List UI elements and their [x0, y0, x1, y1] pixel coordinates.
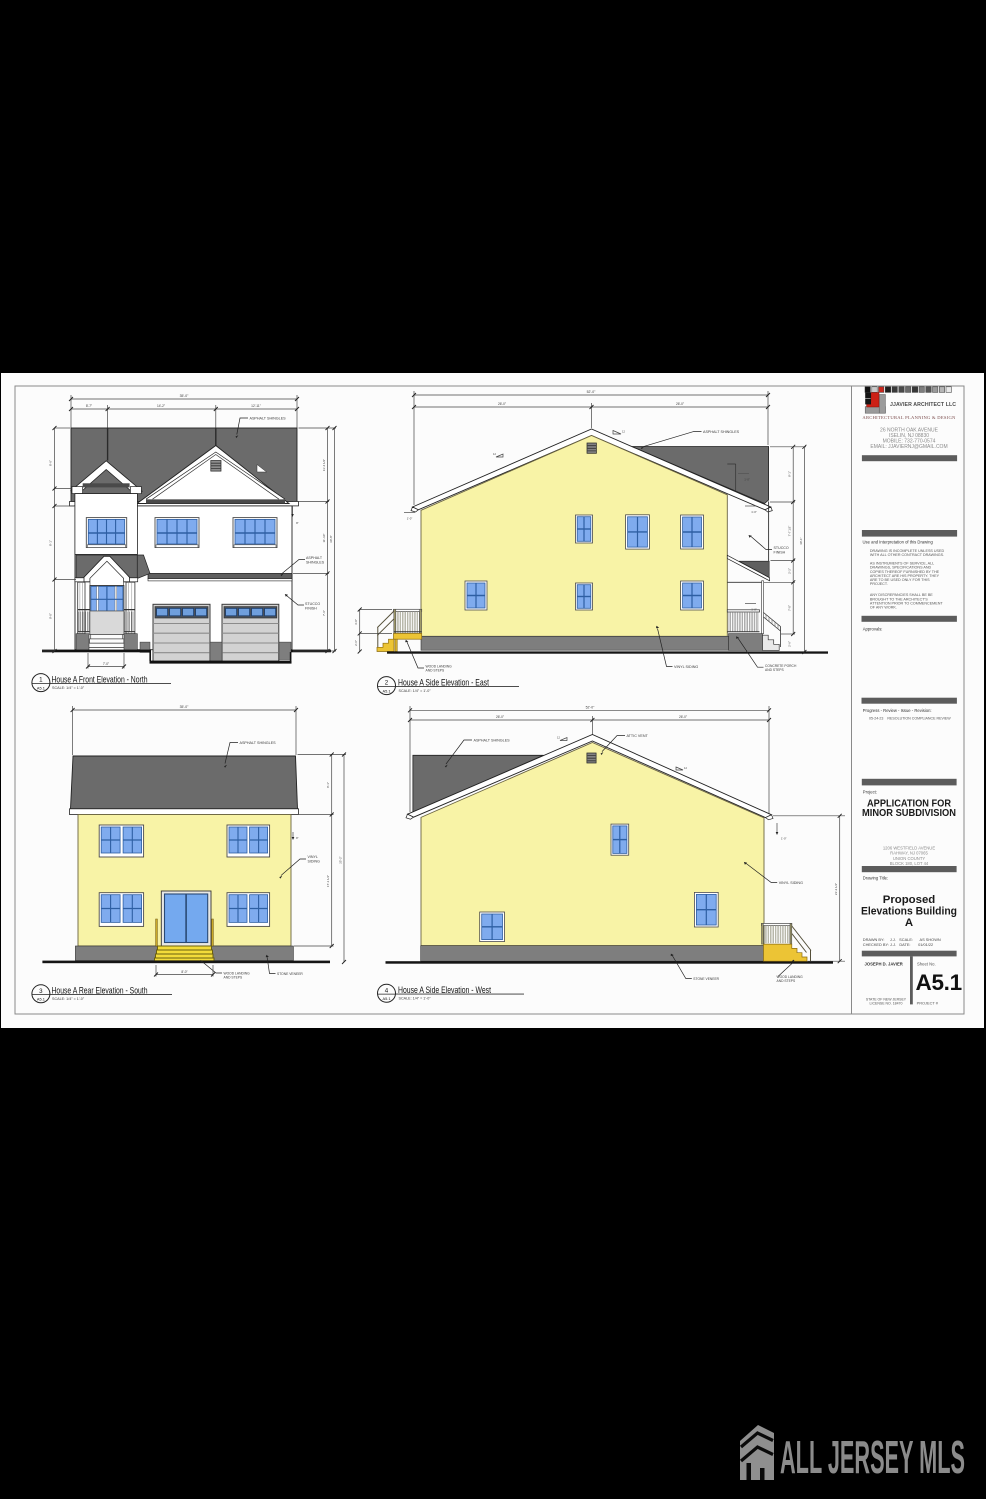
svg-text:Proposed: Proposed — [883, 894, 936, 906]
svg-text:STUCCO: STUCCO — [774, 546, 789, 550]
svg-text:ATTIC VENT: ATTIC VENT — [627, 734, 649, 738]
svg-text:A5.1: A5.1 — [37, 685, 45, 690]
svg-text:26'-0": 26'-0" — [679, 715, 687, 719]
svg-text:Project:: Project: — [863, 790, 877, 795]
svg-text:Elevations Building: Elevations Building — [861, 905, 957, 917]
svg-text:7'-0": 7'-0" — [103, 662, 109, 666]
svg-text:1'-0": 1'-0" — [744, 478, 750, 482]
svg-text:AND STEPS: AND STEPS — [777, 979, 796, 983]
svg-text:MINOR SUBDIVISION: MINOR SUBDIVISION — [862, 808, 956, 819]
svg-text:A5.1: A5.1 — [37, 997, 45, 1002]
svg-text:SHINGLES: SHINGLES — [306, 560, 325, 564]
svg-text:12'-11": 12'-11" — [251, 404, 261, 408]
svg-text:JJAVIER ARCHITECT LLC: JJAVIER ARCHITECT LLC — [890, 402, 956, 408]
svg-text:21'-2 1/2": 21'-2 1/2" — [834, 883, 838, 895]
svg-text:JOSEPH D. JAVIER: JOSEPH D. JAVIER — [865, 962, 903, 967]
svg-text:AND STEPS: AND STEPS — [426, 669, 445, 673]
svg-text:STONE VENEER: STONE VENEER — [277, 972, 303, 976]
svg-text:7'-7 1/2": 7'-7 1/2" — [788, 526, 792, 537]
svg-text:3: 3 — [39, 988, 43, 995]
svg-text:7'-6": 7'-6" — [322, 610, 326, 616]
svg-text:PROJECT.: PROJECT. — [870, 582, 888, 586]
svg-text:ARCHITECTURAL PLANNING & DESIG: ARCHITECTURAL PLANNING & DESIGN — [862, 415, 956, 420]
svg-text:AND STEPS: AND STEPS — [224, 975, 243, 979]
svg-text:1'-0": 1'-0" — [407, 517, 413, 521]
svg-text:EMAIL: JJAVIERNJ@GMAIL.COM: EMAIL: JJAVIERNJ@GMAIL.COM — [870, 444, 947, 450]
svg-text:AND STEPS: AND STEPS — [765, 668, 784, 672]
svg-text:Use and Interpretation of this: Use and Interpretation of this Drawing — [863, 540, 934, 545]
svg-text:House A Side Elevation - East: House A Side Elevation - East — [398, 677, 489, 687]
svg-text:8'-0": 8'-0" — [181, 970, 187, 974]
svg-text:House A Front Elevation - Nort: House A Front Elevation - North — [52, 674, 148, 684]
svg-text:ALL JERSEY MLS: ALL JERSEY MLS — [780, 1431, 965, 1483]
svg-text:BLOCK 180, LOT 44: BLOCK 180, LOT 44 — [890, 861, 929, 866]
svg-text:VINYL SIDING: VINYL SIDING — [779, 881, 803, 885]
svg-text:House A Rear Elevation - South: House A Rear Elevation - South — [52, 986, 148, 996]
svg-text:26'-0": 26'-0" — [496, 715, 504, 719]
svg-text:PROJECT #: PROJECT # — [917, 1001, 939, 1006]
svg-text:26'-0": 26'-0" — [498, 402, 506, 406]
svg-text:8'-1": 8'-1" — [49, 540, 53, 546]
svg-text:7'-0": 7'-0" — [788, 605, 792, 611]
svg-text:8'-1": 8'-1" — [788, 471, 792, 477]
svg-text:8'-1": 8'-1" — [326, 782, 330, 788]
svg-text:2'-2": 2'-2" — [788, 568, 792, 574]
svg-text:ASPHALT SHINGLES: ASPHALT SHINGLES — [474, 738, 511, 742]
svg-text:ASPHALT SHINGLES: ASPHALT SHINGLES — [703, 430, 740, 434]
svg-text:ASPHALT: ASPHALT — [306, 556, 323, 560]
svg-text:30'-8": 30'-8" — [329, 535, 333, 543]
svg-text:STONE VENEER: STONE VENEER — [693, 977, 719, 981]
svg-text:17'-1 1/2": 17'-1 1/2" — [326, 875, 330, 887]
svg-text:14'-2": 14'-2" — [157, 404, 165, 408]
svg-text:9": 9" — [296, 836, 299, 840]
svg-text:House A Side Elevation - West: House A Side Elevation - West — [398, 985, 491, 995]
svg-text:SCALE: 1/4" = 1'-0": SCALE: 1/4" = 1'-0" — [399, 689, 432, 693]
svg-text:52'-0": 52'-0" — [586, 706, 595, 710]
svg-text:1: 1 — [39, 677, 43, 684]
svg-text:CHECKED BY: J.J. DATE:: CHECKED BY: J.J. DATE: 01/01/22 — [863, 942, 933, 947]
svg-text:LICENSE NO. 18470: LICENSE NO. 18470 — [870, 1001, 903, 1005]
svg-text:SCALE: 1/4" = 1'-0": SCALE: 1/4" = 1'-0" — [399, 997, 432, 1001]
svg-text:26'-0": 26'-0" — [676, 402, 684, 406]
svg-text:25'-2": 25'-2" — [339, 856, 343, 863]
svg-text:2'-6": 2'-6" — [788, 641, 792, 647]
svg-text:A5.1: A5.1 — [916, 970, 962, 995]
svg-text:8'-6": 8'-6" — [49, 460, 53, 466]
svg-text:4: 4 — [385, 987, 389, 994]
svg-text:30'-1": 30'-1" — [799, 537, 803, 544]
svg-text:52'-0": 52'-0" — [587, 390, 596, 394]
svg-text:SCALE: 1/4" = 1'-0": SCALE: 1/4" = 1'-0" — [52, 686, 85, 690]
svg-text:SCALE: 1/4" = 1'-0": SCALE: 1/4" = 1'-0" — [52, 997, 85, 1001]
svg-text:8'-7": 8'-7" — [86, 404, 92, 408]
svg-text:2'-6": 2'-6" — [354, 640, 358, 646]
svg-text:Sheet No.: Sheet No. — [917, 962, 936, 967]
svg-text:11'-4 1/2": 11'-4 1/2" — [322, 459, 326, 471]
svg-text:A5.1: A5.1 — [382, 996, 390, 1001]
svg-text:05-24-23 RESOLUTION COMPLIA: 05-24-23 RESOLUTION COMPLIANCE REVIEW — [869, 717, 951, 721]
svg-text:VINYL: VINYL — [308, 855, 318, 859]
svg-text:1'-0": 1'-0" — [751, 608, 757, 612]
svg-text:WITH ALL OTHER CONTRACT DRAWIN: WITH ALL OTHER CONTRACT DRAWINGS. — [870, 553, 944, 557]
svg-text:Progress - Review - Issue - Re: Progress - Review - Issue - Revision: — [863, 708, 932, 713]
svg-text:A: A — [905, 917, 913, 929]
svg-text:9'-0": 9'-0" — [49, 613, 53, 619]
svg-text:SIDING: SIDING — [308, 859, 321, 863]
svg-text:1'-0": 1'-0" — [781, 837, 787, 841]
svg-text:A5.1: A5.1 — [382, 688, 390, 693]
svg-text:2: 2 — [385, 680, 389, 687]
svg-text:1'-0": 1'-0" — [751, 510, 757, 514]
svg-text:FINISH: FINISH — [305, 606, 317, 610]
svg-text:35'-0": 35'-0" — [180, 705, 189, 709]
svg-text:ASPHALT SHINGLES: ASPHALT SHINGLES — [250, 417, 287, 421]
svg-text:35'-0": 35'-0" — [180, 394, 189, 398]
svg-text:STUCCO: STUCCO — [305, 602, 320, 606]
svg-text:11'-10": 11'-10" — [322, 533, 326, 542]
svg-text:ASPHALT SHINGLES: ASPHALT SHINGLES — [240, 741, 277, 745]
svg-text:3'-0": 3'-0" — [354, 619, 358, 625]
svg-text:FINISH: FINISH — [774, 550, 786, 554]
svg-text:9": 9" — [296, 521, 299, 525]
svg-text:Drawing Title:: Drawing Title: — [863, 876, 888, 881]
svg-text:VINYL SIDING: VINYL SIDING — [674, 665, 698, 669]
svg-text:OF ANY WORK.: OF ANY WORK. — [870, 606, 897, 610]
svg-text:Approvals:: Approvals: — [863, 627, 883, 632]
